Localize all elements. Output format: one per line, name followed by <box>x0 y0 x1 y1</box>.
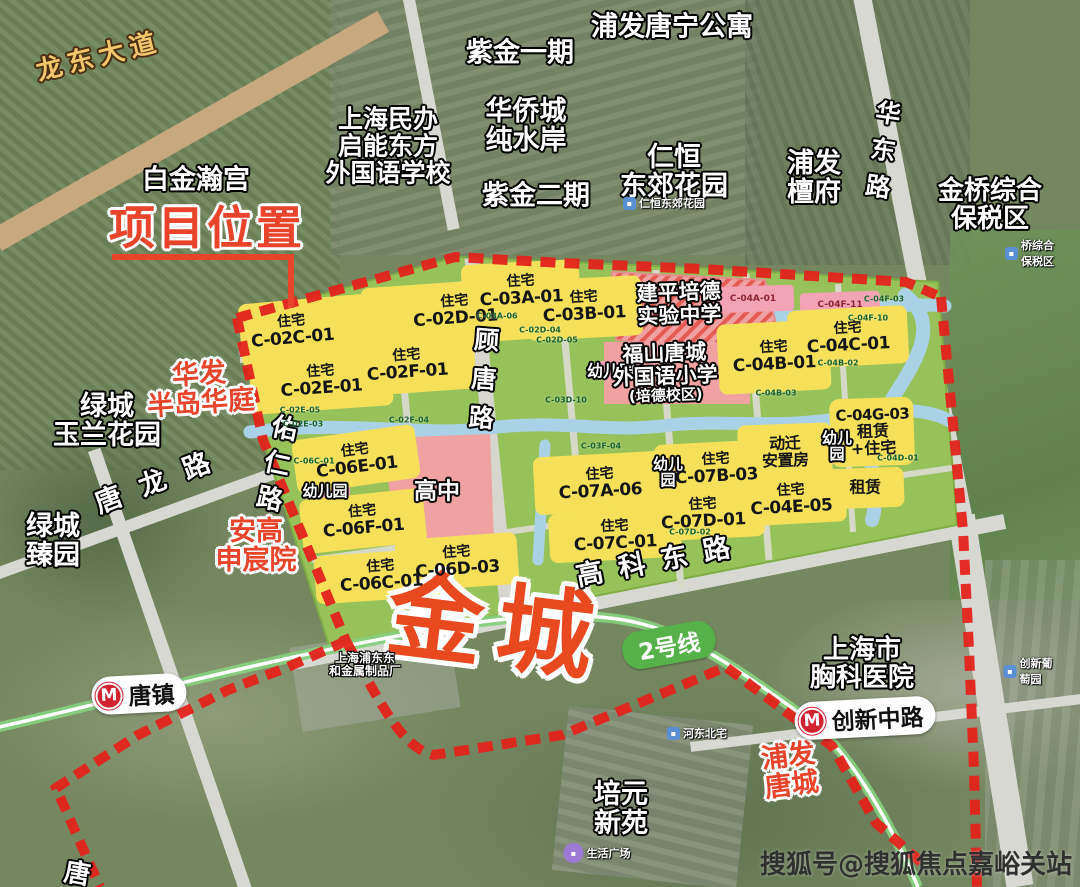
lot-code: C-06C-01 <box>293 457 334 466</box>
road-label-tang-edge: 唐 <box>59 857 91 887</box>
lot-code: C-02E-05 <box>280 406 320 415</box>
place-huaqiaocheng: 华侨城 纯水岸 <box>486 97 567 155</box>
kindergarten-label-b: 幼儿园 <box>302 483 347 499</box>
building-icon: ▪ <box>623 197 636 210</box>
parcel-label-c04b01: 住宅C-04B-01 <box>732 338 817 376</box>
place-renheng-dongjiao: 仁恒 东郊花园 <box>620 143 728 201</box>
place-peiyuan-xinyuan: 培元 新苑 <box>594 780 648 838</box>
place-baijinhangong: 白金瀚宫 <box>142 165 250 194</box>
metro-station-tangzhen: M 唐镇 <box>91 673 188 716</box>
lot-code: C-04F-03 <box>864 295 904 304</box>
poi-hedongbeizhai: ▪河东北宅 <box>667 725 727 741</box>
lot-code: C-04B-03 <box>755 389 796 398</box>
poi-bonded-zone-small: ▪桥综合保税区 <box>1005 237 1055 269</box>
place-pufa-tangcheng: 浦发 唐城 <box>760 739 821 803</box>
place-qineng-school: 上海民办 启能东方 外国语学校 <box>325 106 450 187</box>
parcel-label-zulin: 租赁 <box>849 478 880 495</box>
place-lvcheng-yulan: 绿城 玉兰花园 <box>53 392 161 450</box>
place-chest-hospital: 上海市 胸科医院 <box>810 636 914 692</box>
lot-code: C-04B-02 <box>817 359 858 368</box>
place-jinqiao-bonded-zone: 金桥综合 保税区 <box>938 177 1042 233</box>
place-pufa-tanfu: 浦发 檀府 <box>787 149 841 207</box>
parcel-label-c04c01: 住宅C-04C-01 <box>806 319 891 357</box>
place-zijin-phase2: 紫金二期 <box>482 181 590 210</box>
poi-renheng-small: ▪仁恒东郊花园 <box>623 195 705 211</box>
lot-code-pink: C-04A-01 <box>730 294 776 304</box>
project-location-callout: 项目位置 <box>109 204 305 254</box>
metro-station-chuangxin: M 创新中路 <box>794 695 937 740</box>
parcel-label-c02c01: 住宅C-02C-01 <box>249 311 335 352</box>
poi-life-plaza: ▪生活广场 <box>564 843 631 863</box>
lot-code: C-03D-10 <box>545 396 587 405</box>
building-icon: ▪ <box>1005 247 1018 260</box>
parcel-label-c07c01: 住宅C-07C-01 <box>573 517 658 555</box>
parcel-label-c02f01: 住宅C-02F-01 <box>365 345 449 384</box>
place-pufa-tangning: 浦发唐宁公寓 <box>591 12 753 41</box>
parcel-label-c06d03: 住宅C-06D-03 <box>414 542 501 581</box>
lot-code: C-02D-04 <box>519 326 561 335</box>
place-lvcheng-zhenyuan: 绿城 臻园 <box>26 512 80 570</box>
plaza-icon: ▪ <box>564 843 584 863</box>
lot-code-pink: C-04F-11 <box>817 300 862 310</box>
place-zijin-phase1: 紫金一期 <box>466 38 574 67</box>
lot-code: C-02E-03 <box>283 420 323 429</box>
lot-code: C-03F-04 <box>581 442 621 451</box>
poi-chuangxin-vineyard: ▪创新葡萄园 <box>1004 655 1055 687</box>
satellite-map: 项目位置 金城 龙东大道 唐龙路 佑仁路 顾唐路 华东路 高科东路 唐 白金瀚宫… <box>0 0 1080 887</box>
parcel-label-c03b01: 住宅C-03B-01 <box>542 288 627 326</box>
marker-leader-line <box>288 254 294 308</box>
lot-code: C-07D-02 <box>669 528 711 537</box>
lot-code: C-02D-05 <box>536 336 578 345</box>
lot-code: C-04F-10 <box>848 314 888 323</box>
metro-logo-icon: M <box>95 681 123 709</box>
parcel-label-c06f01: 住宅C-06F-01 <box>321 501 405 541</box>
parcel-label-c07a06: 住宅C-07A-06 <box>557 465 642 503</box>
highschool-label: 高中 <box>414 480 460 505</box>
building-icon: ▪ <box>667 727 680 740</box>
place-metal-factory: 上海浦东东 和金属制品厂 <box>329 652 401 678</box>
school-label-jianping: 建平培德实验中学 <box>636 280 722 328</box>
parcel-label-c07b03: 住宅C-07B-03 <box>674 450 759 488</box>
parcel-label-c04e05: 住宅C-04E-05 <box>749 481 833 519</box>
place-angao-shenchen: 安高 申宸院 <box>216 517 297 575</box>
marker-underline <box>112 254 294 260</box>
watermark: 搜狐号@搜狐焦点嘉峪关站 <box>760 844 1072 881</box>
lot-code: C-02F-04 <box>389 416 429 425</box>
parcel-label-dongqian: 动迁安置房 <box>761 434 809 470</box>
lot-code: C-03A-06 <box>476 312 517 321</box>
place-huafa-bandao: 华发 半岛华庭 <box>144 356 256 422</box>
school-label-fushan: 福山唐城外国语小学(培德校区) <box>611 340 718 405</box>
kindergarten-label-d: 幼儿园 <box>822 430 852 462</box>
lot-code: C-04D-01 <box>877 454 919 463</box>
building-icon: ▪ <box>1004 665 1017 678</box>
metro-logo-icon: M <box>798 707 826 735</box>
parcel-label-c06c01: 住宅C-06C-01 <box>338 556 423 595</box>
parcel-label-c02e01: 住宅C-02E-01 <box>279 361 363 400</box>
